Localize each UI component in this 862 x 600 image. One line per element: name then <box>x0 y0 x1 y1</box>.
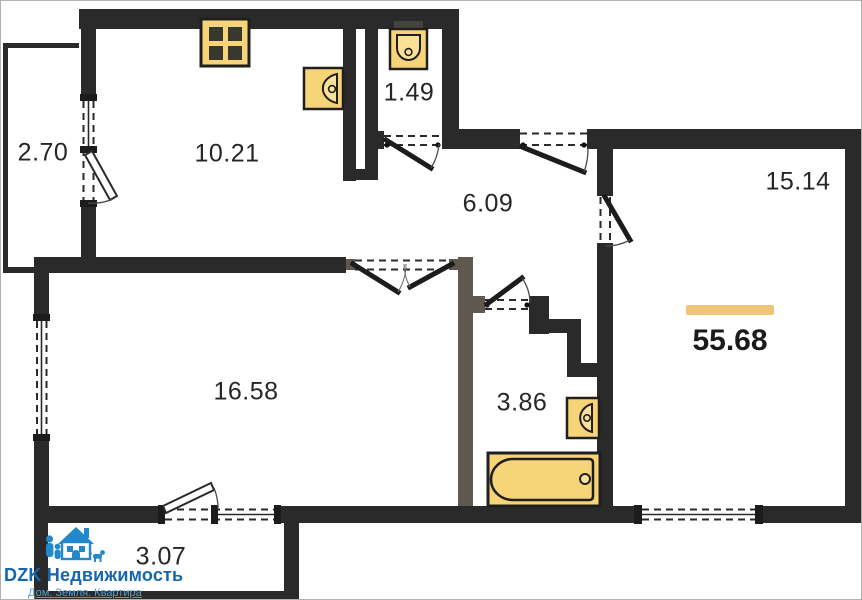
kitchen-balcony-window <box>80 94 97 207</box>
stove-icon <box>201 19 249 66</box>
area-label-hallway: 6.09 <box>463 190 514 219</box>
logo-brand-text: DZK Недвижимость <box>4 565 183 586</box>
bedroom-window <box>634 505 763 524</box>
bathroom-door <box>484 278 530 309</box>
bedroom-door <box>601 197 631 246</box>
area-label-living-room: 16.58 <box>213 378 278 407</box>
living-room-window <box>33 314 50 441</box>
kitchen-sink-icon <box>304 68 343 109</box>
toilet-icon <box>390 21 427 69</box>
kitchen-balcony-door <box>85 151 117 203</box>
area-label-balcony-left: 2.70 <box>18 139 69 168</box>
logo-tagline: Дом. Земля. Квартира <box>28 587 142 599</box>
living-room-double-door <box>353 261 452 293</box>
logo-house-icon <box>43 523 109 569</box>
area-label-bedroom: 15.14 <box>765 168 830 197</box>
wc-door <box>384 136 442 168</box>
washbasin-icon <box>567 398 599 438</box>
floor-plan-canvas: 2.70 10.21 1.49 6.09 15.14 16.58 3.86 3.… <box>0 0 862 600</box>
total-area-label: 55.68 <box>692 324 767 358</box>
area-label-wc: 1.49 <box>384 79 435 108</box>
entrance-door <box>520 134 588 173</box>
bathtub-icon <box>488 453 600 506</box>
area-label-kitchen: 10.21 <box>194 140 259 169</box>
windows <box>33 94 763 524</box>
total-area-accent-bar <box>686 305 774 315</box>
area-label-bathroom: 3.86 <box>497 389 548 418</box>
